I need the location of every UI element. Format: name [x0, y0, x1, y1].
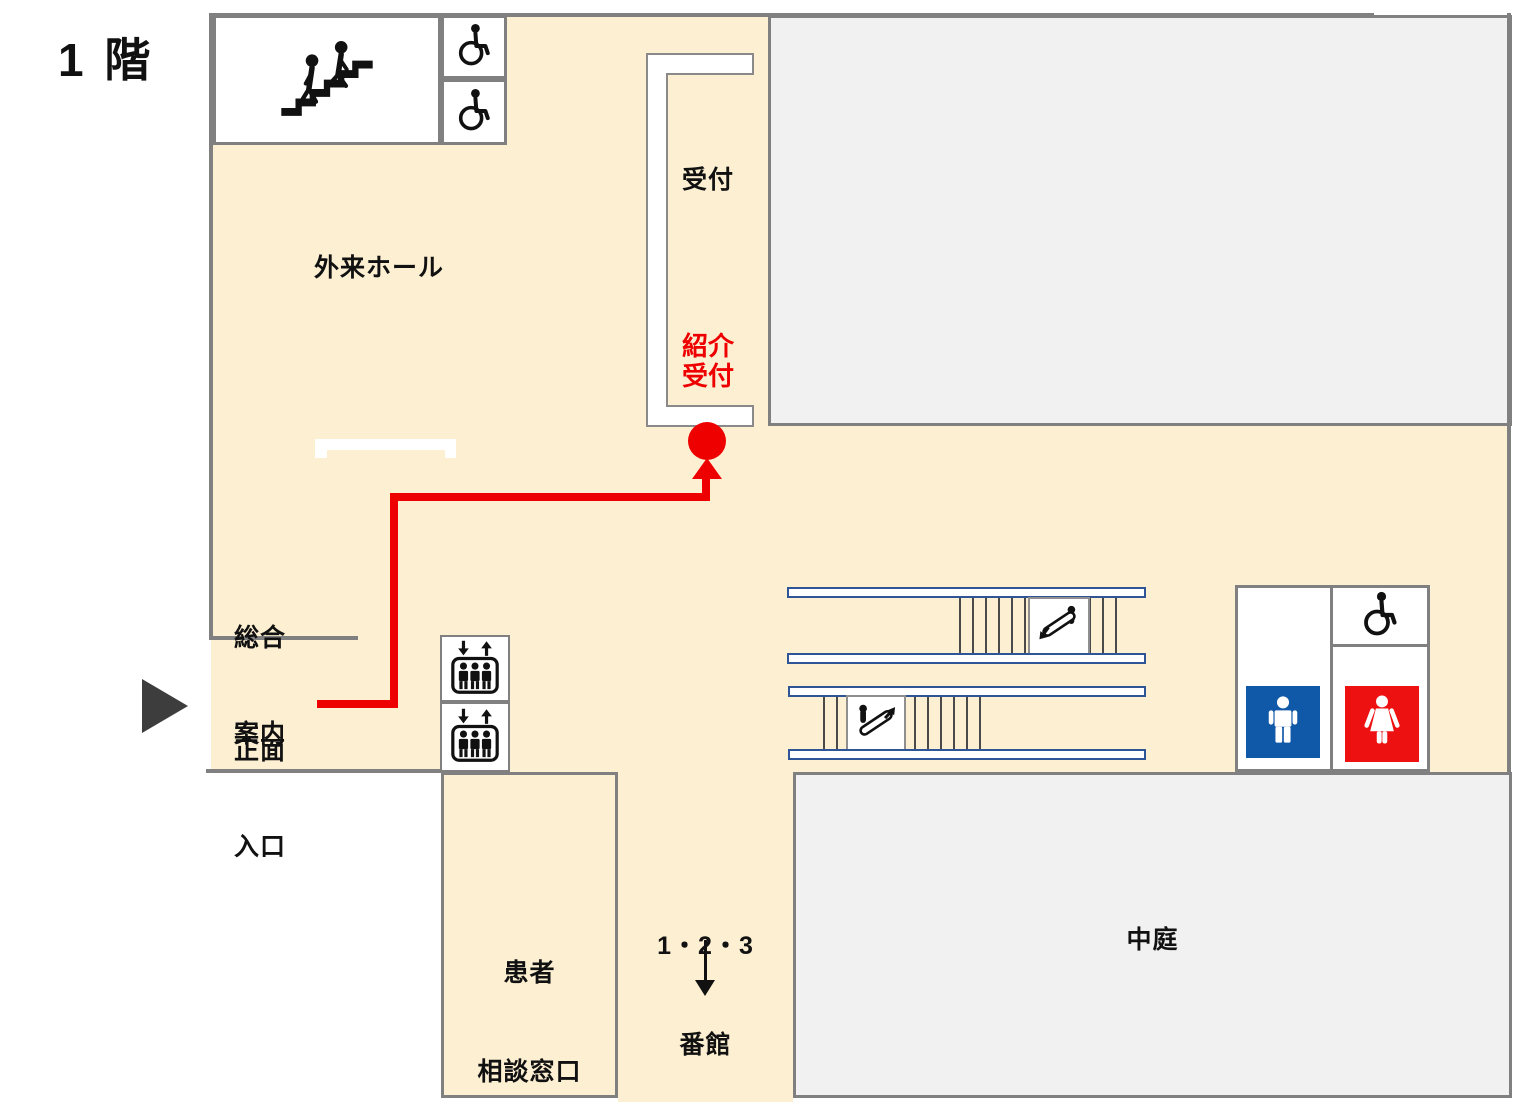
- accessible-area-2: [441, 79, 507, 145]
- patient-consultation-line2: 相談窓口: [441, 1056, 618, 1089]
- route-segment-1: [317, 700, 397, 708]
- corridor-arrow-shaft: [704, 940, 707, 982]
- escalator-down-rail-bottom: [787, 653, 1146, 664]
- main-entrance-line1: 正面: [234, 735, 286, 767]
- wall-right: [1507, 13, 1511, 772]
- route-arrowhead-icon: [692, 458, 722, 479]
- restroom-female-sign: [1345, 686, 1419, 762]
- route-segment-4: [702, 478, 710, 498]
- escalator-up-icon: [853, 700, 899, 747]
- escalator-up-rail-bottom: [788, 749, 1146, 760]
- escalator-up-sign: [846, 695, 906, 751]
- male-icon: [1256, 694, 1310, 751]
- escalator-down-icon: [1036, 603, 1082, 650]
- referral-reception-line1: 紹介: [660, 331, 756, 361]
- reception-label: 受付: [660, 164, 756, 196]
- floor-map-1f: 1 階: [0, 0, 1533, 1112]
- destination-dot-icon: [688, 422, 726, 460]
- accessible-area-1: [441, 15, 507, 79]
- wheelchair-icon: [455, 88, 493, 137]
- restroom-divider-horizontal: [1330, 644, 1430, 647]
- elevator-1: [440, 635, 510, 702]
- patient-consultation-label: 患者 相談窓口: [441, 891, 618, 1112]
- stairs-icon: [275, 31, 379, 130]
- route-segment-2: [390, 493, 398, 708]
- route-segment-3: [390, 493, 710, 501]
- building-block: [768, 15, 1512, 426]
- floor-title: 1 階: [58, 24, 154, 90]
- entrance-triangle-icon: [142, 679, 188, 733]
- female-icon: [1354, 693, 1410, 756]
- outpatient-hall-label: 外来ホール: [314, 252, 444, 284]
- elevator-icon: [450, 639, 500, 699]
- wheelchair-icon: [455, 23, 493, 72]
- escalator-down-rail-top: [787, 587, 1146, 598]
- main-entrance-line2: 入口: [234, 831, 286, 863]
- referral-reception-line2: 受付: [660, 361, 756, 391]
- stairs-area: [213, 15, 441, 145]
- general-info-line1: 総合: [234, 622, 286, 654]
- courtyard-label: 中庭: [793, 924, 1512, 956]
- referral-reception-label: 紹介 受付: [660, 331, 756, 391]
- restroom-accessible-cell: [1333, 588, 1427, 644]
- hall-counter-bench: [315, 439, 456, 458]
- buildings-123-line2: 番館: [618, 1029, 793, 1062]
- wheelchair-icon: [1360, 591, 1400, 642]
- corridor-arrow-down-icon: [695, 980, 715, 996]
- main-entrance-label: 正面 入口: [234, 671, 286, 927]
- restroom-male-sign: [1246, 686, 1320, 758]
- elevator-icon: [450, 707, 500, 767]
- escalator-down-sign: [1028, 597, 1090, 655]
- patient-consultation-line1: 患者: [441, 957, 618, 990]
- escalator-up-rail-top: [788, 686, 1146, 697]
- elevator-2: [440, 702, 510, 772]
